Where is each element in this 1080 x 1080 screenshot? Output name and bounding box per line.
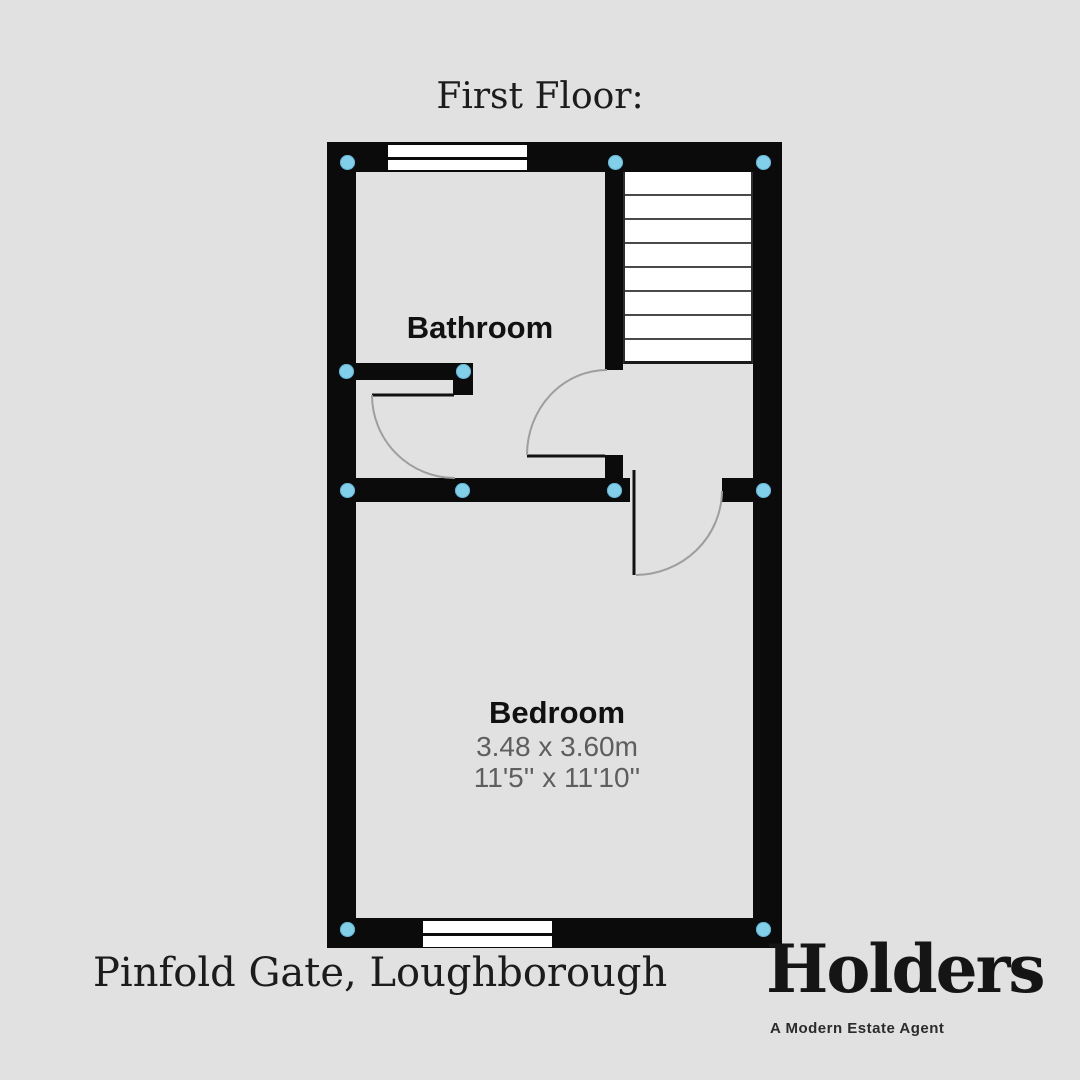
wall-stairs-divider (605, 160, 623, 370)
property-address: Pinfold Gate, Loughborough (93, 950, 667, 996)
bedroom-label: Bedroom (407, 695, 707, 731)
wall-left (327, 142, 356, 948)
bedroom-size-metric: 3.48 x 3.60m (407, 731, 707, 763)
stairs (623, 172, 753, 364)
corner-marker (340, 155, 355, 170)
window-mullion (388, 157, 527, 160)
wall-divider-stub (605, 455, 623, 480)
window-bottom (423, 921, 552, 947)
corner-marker (339, 364, 354, 379)
brand-tagline: A Modern Estate Agent (770, 1020, 944, 1037)
corner-marker (340, 922, 355, 937)
wall-right (753, 142, 782, 948)
wall-bottom (327, 918, 782, 948)
corner-marker (456, 364, 471, 379)
wall-partition (327, 478, 630, 502)
page-title: First Floor: (0, 76, 1080, 117)
corner-marker (340, 483, 355, 498)
brand-logo: Holders (766, 936, 1044, 1002)
corner-marker (608, 155, 623, 170)
corner-marker (607, 483, 622, 498)
floorplan-page: First Floor: (0, 0, 1080, 1080)
window-top (388, 145, 527, 170)
door-arc-bedroom (636, 491, 722, 575)
corner-marker (756, 155, 771, 170)
door-arc-bathroom (372, 395, 455, 478)
door-arc-landing (527, 370, 607, 455)
corner-marker (756, 483, 771, 498)
bedroom-size-imperial: 11'5'' x 11'10'' (407, 762, 707, 794)
corner-marker (455, 483, 470, 498)
window-mullion (423, 933, 552, 936)
bathroom-label: Bathroom (355, 310, 605, 346)
wall-partition-right-stub (722, 478, 782, 502)
